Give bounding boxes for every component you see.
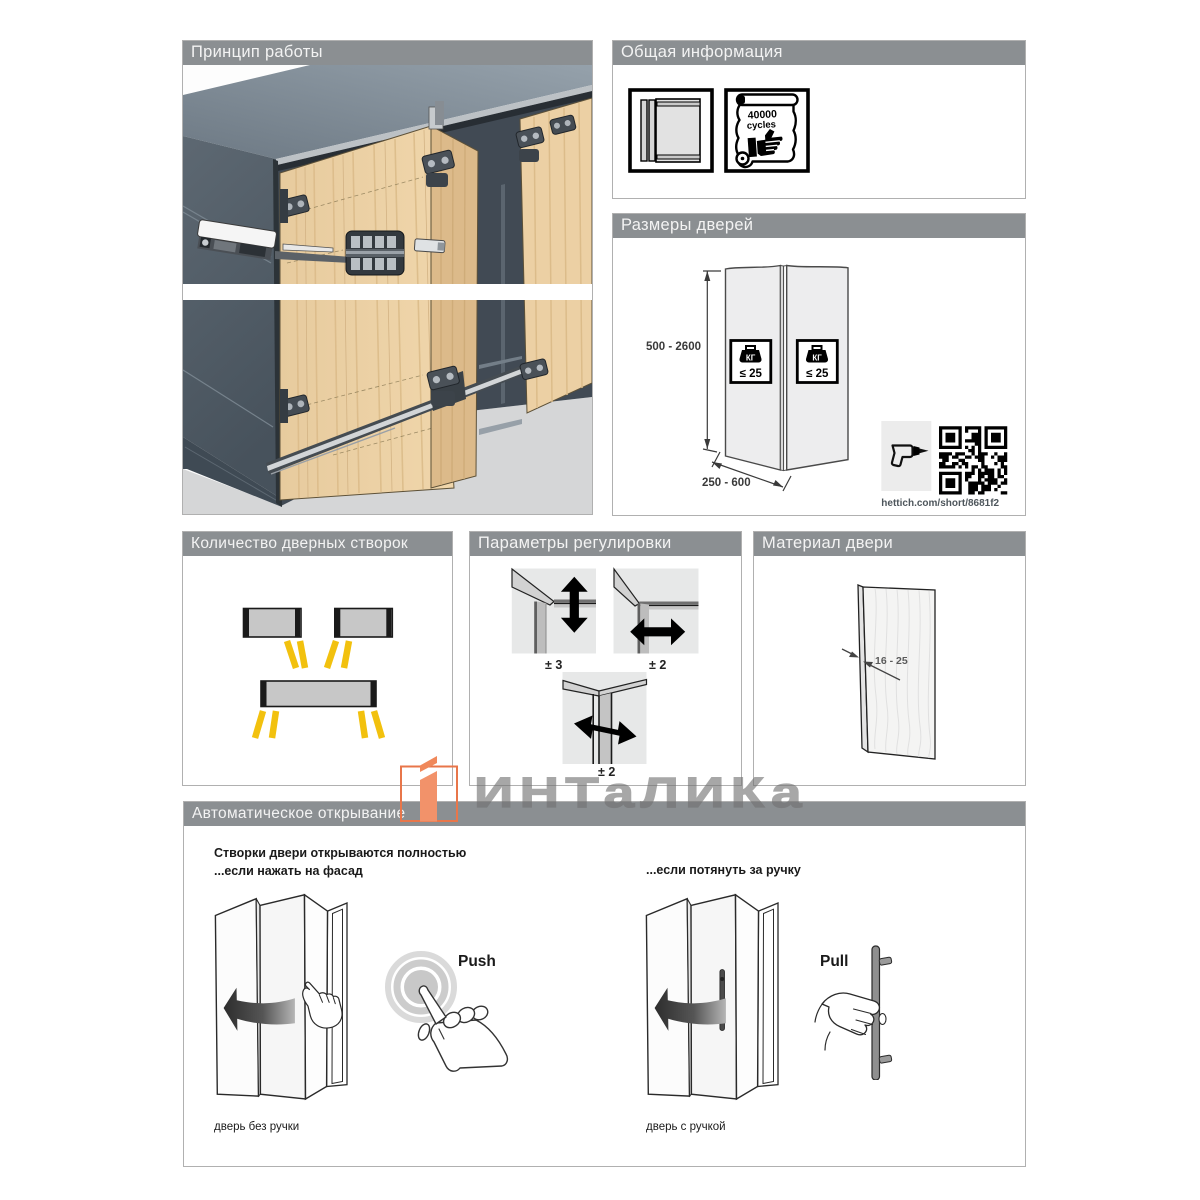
svg-text:± 3: ± 3 <box>545 658 562 672</box>
svg-text:16 - 25: 16 - 25 <box>875 655 908 667</box>
svg-text:КГ: КГ <box>812 354 822 363</box>
svg-text:≤ 25: ≤ 25 <box>806 368 829 380</box>
svg-text:КГ: КГ <box>746 354 756 363</box>
svg-text:500 - 2600: 500 - 2600 <box>646 341 701 353</box>
svg-text:± 2: ± 2 <box>649 658 666 672</box>
svg-text:250 - 600: 250 - 600 <box>702 477 751 489</box>
svg-text:cycles: cycles <box>747 119 777 132</box>
svg-text:≤ 25: ≤ 25 <box>740 368 763 380</box>
svg-text:hettich.com/short/8681f2: hettich.com/short/8681f2 <box>881 498 999 509</box>
